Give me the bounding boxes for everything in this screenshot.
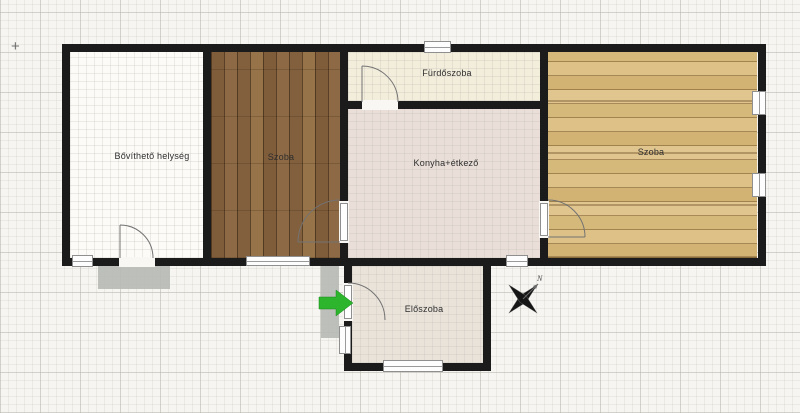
doorway-bovitheto[interactable] [119, 257, 155, 267]
entrance-step[interactable] [321, 264, 339, 338]
window-bathroom-top[interactable] [424, 41, 451, 53]
room-label-konyha: Konyha+étkező [414, 158, 479, 168]
doorway-furdoszoba[interactable] [362, 100, 398, 110]
wall-eloszoba-right[interactable] [483, 266, 491, 371]
room-label-bovitheto: Bővíthető helység [115, 151, 190, 161]
wall-exterior-bottom[interactable] [62, 258, 766, 266]
compass-needle-head [533, 284, 538, 289]
plan-origin-marker: + [11, 38, 20, 55]
window-eloszoba-bottom[interactable] [383, 360, 443, 372]
wall-exterior-right[interactable] [758, 44, 766, 266]
room-eloszoba[interactable] [352, 266, 483, 363]
entrance-step[interactable] [98, 266, 170, 289]
door-leaf[interactable] [540, 203, 548, 236]
room-label-furdoszoba: Fürdőszoba [422, 68, 472, 78]
room-label-szoba-right: Szoba [638, 147, 665, 157]
compass-north-label: N [536, 274, 543, 283]
window-kitchen-bottom[interactable] [506, 255, 528, 267]
window-right-upper[interactable] [752, 91, 766, 115]
room-konyha-etkezo[interactable] [348, 109, 540, 258]
door-leaf[interactable] [344, 285, 352, 319]
compass-needle [523, 284, 538, 299]
window-szoba-left-bottom[interactable] [246, 256, 310, 266]
window-right-lower[interactable] [752, 173, 766, 197]
window-bovitheto-bottom[interactable] [72, 255, 93, 267]
wall-exterior-left[interactable] [62, 44, 70, 266]
compass-icon[interactable]: N [495, 271, 552, 328]
floor-plan-canvas: + Bővíthető helység Szoba Fürdőszoba Kon… [0, 0, 800, 413]
window-eloszoba-left[interactable] [339, 326, 351, 354]
wall-interior-1[interactable] [203, 44, 211, 266]
room-label-eloszoba: Előszoba [405, 304, 444, 314]
wall-exterior-top[interactable] [62, 44, 766, 52]
door-leaf[interactable] [340, 203, 348, 241]
room-label-szoba-left: Szoba [268, 152, 295, 162]
